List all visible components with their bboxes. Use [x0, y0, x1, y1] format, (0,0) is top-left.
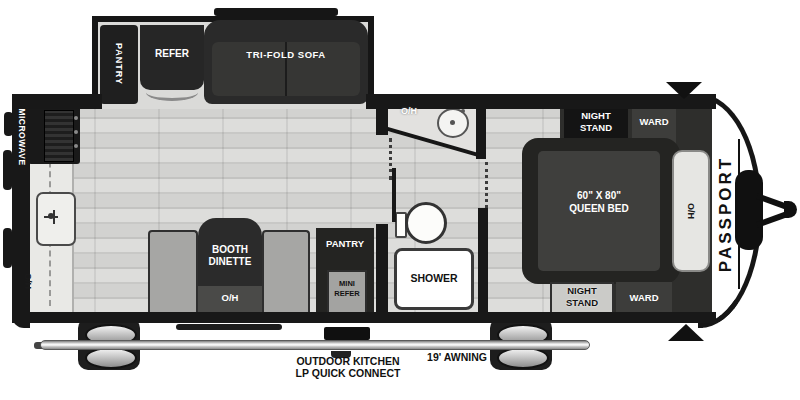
awning-caption: 19' AWNING [414, 351, 500, 363]
slideout-rim [214, 8, 338, 16]
entry-step [176, 324, 282, 330]
tire-left-rear [85, 347, 137, 369]
brand-logo: PASSPORT [714, 139, 740, 289]
sofa-label: TRI-FOLD SOFA [204, 50, 368, 61]
stove-knob-2 [74, 130, 78, 134]
bath-wall-top-right [476, 103, 486, 159]
refrigerator-label: REFER [140, 48, 204, 60]
griddle-box [324, 327, 370, 340]
night-stand-bottom-label-line2: STAND [550, 298, 614, 309]
rear-bumper-tab-1 [4, 112, 13, 136]
bed-name-label: QUEEN BED [538, 203, 660, 215]
bottom-wall [12, 312, 716, 323]
dinette-label-line2: DINETTE [198, 256, 262, 268]
brand-text: PASSPORT [716, 156, 736, 272]
night-stand-bottom-label-line1: NIGHT [550, 286, 614, 297]
outdoor-kitchen-caption-line2: LP QUICK CONNECT [272, 367, 424, 379]
outdoor-kitchen-caption: OUTDOOR KITCHEN LP QUICK CONNECT [272, 355, 424, 379]
bath-wall-bottom-right [478, 208, 488, 318]
wardrobe-top-label: WARD [632, 117, 676, 128]
hitch-coupler [784, 201, 797, 218]
mini-refer-label-line2: REFER [327, 290, 367, 299]
bath-pocket-door-left [389, 138, 392, 180]
bath-half-wall [392, 168, 396, 222]
dinette-overhead-label: O/H [198, 293, 262, 304]
bed-size-label: 60" X 80" [538, 190, 660, 202]
refrigerator-door-arc [146, 84, 198, 101]
outdoor-kitchen-caption-line1: OUTDOOR KITCHEN [272, 355, 424, 367]
awning-rail [40, 340, 590, 350]
shower-label: SHOWER [394, 272, 474, 284]
wardrobe-bottom-label: WARD [616, 293, 672, 304]
dinette-label-line1: BOOTH [198, 244, 262, 256]
toilet-bowl [405, 202, 447, 244]
mini-refer-label-line1: MINI [327, 280, 367, 289]
kitchen-sink [36, 192, 76, 246]
dinette-bench-right [262, 230, 310, 314]
stove-knob-3 [74, 144, 78, 148]
slideout-pantry-label: PANTRY [112, 29, 126, 99]
stove-knob-1 [74, 116, 78, 120]
bath-sink-drain [450, 120, 455, 125]
bath-wall-bottom-left [376, 224, 388, 318]
kitchen-overhead-label: O/H [22, 265, 34, 297]
tire-right-rear [497, 347, 549, 369]
rear-bumper-tab-3 [3, 228, 12, 268]
rear-bumper-tab-2 [3, 150, 12, 190]
floorplan-canvas: PASSPORT PANTRY REFER TRI-FOLD SOFA MICR… [0, 0, 800, 400]
dinette-bench-left [148, 230, 198, 314]
sink-drain [48, 213, 54, 219]
bed-overhead-label: O/H [685, 196, 697, 226]
microwave-label: MICROWAVE [15, 100, 29, 174]
bath-pocket-door-right [485, 162, 488, 208]
night-stand-top-label-line1: NIGHT [564, 111, 628, 122]
night-stand-top-label-line2: STAND [564, 123, 628, 134]
bath-faucet-dot [461, 109, 465, 113]
bath-overhead-label: O/H [394, 106, 424, 116]
outdoor-pantry-label: PANTRY [316, 239, 374, 250]
stove-grate [44, 110, 74, 162]
